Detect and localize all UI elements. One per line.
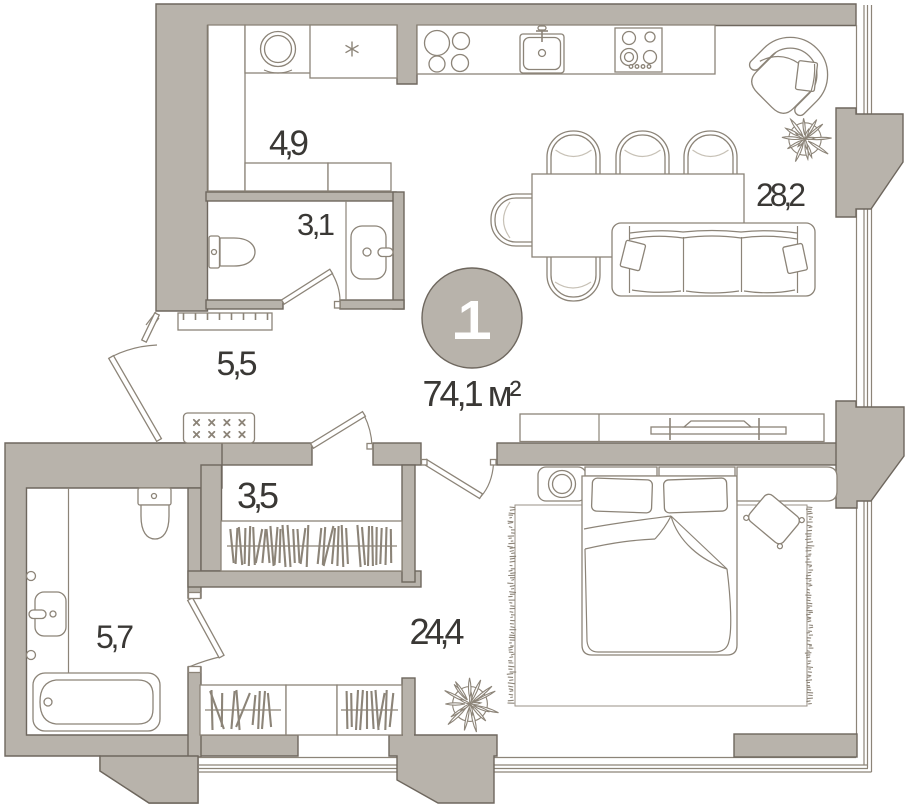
- svg-text:4,9: 4,9: [269, 124, 309, 163]
- svg-text:3,5: 3,5: [237, 475, 279, 516]
- svg-text:28,2: 28,2: [756, 177, 806, 213]
- svg-text:1: 1: [458, 290, 488, 350]
- svg-text:5,7: 5,7: [96, 619, 134, 655]
- svg-text:5,5: 5,5: [217, 345, 258, 383]
- svg-text:3,1: 3,1: [297, 207, 335, 242]
- svg-text:24,4: 24,4: [410, 611, 465, 652]
- svg-text:74,1 м²: 74,1 м²: [423, 373, 522, 414]
